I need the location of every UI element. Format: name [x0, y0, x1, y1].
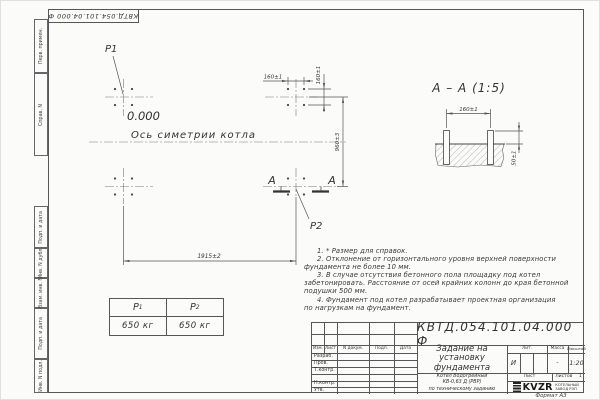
arrow [282, 80, 288, 82]
dim-960: 960±3 [335, 132, 341, 151]
lit-value: И [507, 353, 520, 374]
sheet-label: Лист [507, 373, 552, 381]
kvzr-logo-text: KVZR [523, 382, 553, 393]
anchor-bolt-right [488, 131, 494, 165]
p2-label: P2 [310, 221, 322, 232]
scale-value: 1:20 [568, 353, 585, 374]
note-line: 3. В случае отсутствия бетонного пола пл… [304, 271, 582, 279]
staff-nkontr: Н.контр. [312, 381, 339, 388]
section-cut-marks [273, 187, 329, 192]
staff-razrab: Разраб. [312, 353, 339, 360]
note-line: 2. Отклонение от горизонтального уровня … [304, 255, 582, 263]
note-line: забетонировать. Расстояние от осей крайн… [304, 279, 582, 287]
load-table: P1 P2 650 кг 650 кг [109, 298, 224, 336]
section-letter-left: А [267, 174, 276, 187]
load-table-header-p2: P2 [167, 299, 224, 317]
p1-label: P1 [105, 44, 117, 55]
col-header-izm: Изм. [312, 345, 324, 353]
kvzr-logo-caption: КОТЕЛЬНЫЙ ЗАВОД РЭП [555, 383, 579, 392]
dim-1915: 1915±2 [197, 254, 221, 260]
elevation-label: 0.000 [127, 109, 160, 123]
scale-header: Масштаб [568, 345, 585, 353]
load-table-header-p1: P1 [110, 299, 167, 317]
note-line: 4. Фундамент под котел разрабатывает про… [304, 296, 582, 304]
mass-value: - [547, 353, 568, 374]
staff-empty [312, 374, 339, 381]
arrow [124, 260, 130, 262]
col-header-doc: N докум. [337, 345, 369, 353]
symmetry-axis-label: Ось симетрии котла [131, 130, 256, 141]
note-line: 1. * Размер для справок. [304, 247, 582, 255]
dim-160-side: 160±1 [316, 66, 322, 85]
kvzr-logo-icon [513, 382, 521, 392]
lit-header: Лит. [507, 345, 547, 353]
arrow [342, 181, 344, 187]
doc-number: КВТД.054.101.04.000 Ф [417, 323, 585, 345]
dim-160-top: 160±1 [264, 75, 283, 81]
note-line: фундамента не более 10 мм. [304, 263, 582, 271]
note-line: подушки 500 мм. [304, 287, 582, 295]
logo-area: KVZR КОТЕЛЬНЫЙ ЗАВОД РЭП [507, 381, 585, 395]
notes-block: 1. * Размер для справок. 2. Отклонение о… [304, 247, 582, 312]
arrow [323, 83, 325, 89]
staff-prov: Пров. [312, 360, 339, 367]
arrow [447, 112, 453, 114]
arrow [518, 126, 520, 132]
arrow [342, 97, 344, 103]
format-label: Формат А3 [513, 393, 589, 399]
col-header-podp: Подп. [369, 345, 394, 353]
arrow [290, 260, 296, 262]
p2-leader [296, 189, 309, 219]
section-title: А – А (1:5) [431, 81, 506, 95]
col-header-data: Дата [394, 345, 417, 353]
drawing-name: Задание на установку фундамента [417, 345, 507, 373]
product-name: Котел Водогрейный КВ-0,63 Д (РВР) по тех… [417, 373, 507, 394]
load-table-value-p2: 650 кг [167, 317, 224, 335]
centerlines [89, 79, 346, 204]
arrow [518, 144, 520, 150]
section-dim-160: 160±1 [459, 107, 478, 113]
col-header-list: Лист [324, 345, 337, 353]
staff-utv: Утв. [312, 387, 339, 394]
load-table-value-p1: 650 кг [110, 317, 167, 335]
arrow [485, 112, 491, 114]
anchor-bolt-left [444, 131, 450, 165]
title-block: Изм. Лист N докум. Подп. Дата Разраб. Пр… [311, 322, 584, 393]
arrow [323, 105, 325, 111]
staff-tkontr: Т.контр. [312, 367, 339, 374]
mass-header: Масса [547, 345, 568, 353]
note-line: по нагрузкам на фундамент. [304, 304, 582, 312]
arrow [304, 80, 310, 82]
sheets-cell: Листов 1 [552, 373, 585, 381]
drawing-sheet: КВТД.054.101.04.000 Ф Перв. примен. Спра… [0, 0, 600, 400]
section-dim-50: 50±1 [512, 150, 518, 165]
section-letter-right: А [327, 174, 336, 187]
